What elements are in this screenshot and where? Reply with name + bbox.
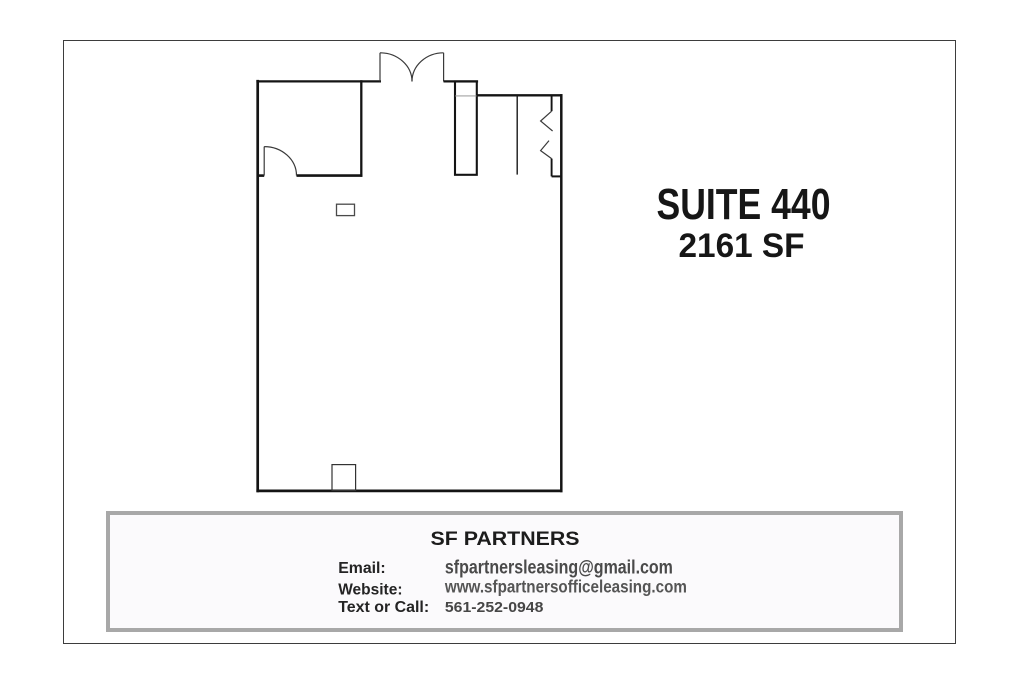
svg-text:561-252-0948: 561-252-0948 (445, 599, 544, 616)
svg-text:sfpartnersleasing@gmail.com: sfpartnersleasing@gmail.com (445, 557, 673, 578)
svg-text:www.sfpartnersofficeleasing.co: www.sfpartnersofficeleasing.com (444, 577, 687, 597)
svg-text:SF PARTNERS: SF PARTNERS (431, 528, 580, 550)
svg-text:Website:: Website: (338, 582, 402, 599)
svg-text:Text or Call:: Text or Call: (338, 599, 429, 616)
svg-text:Email:: Email: (338, 560, 386, 577)
